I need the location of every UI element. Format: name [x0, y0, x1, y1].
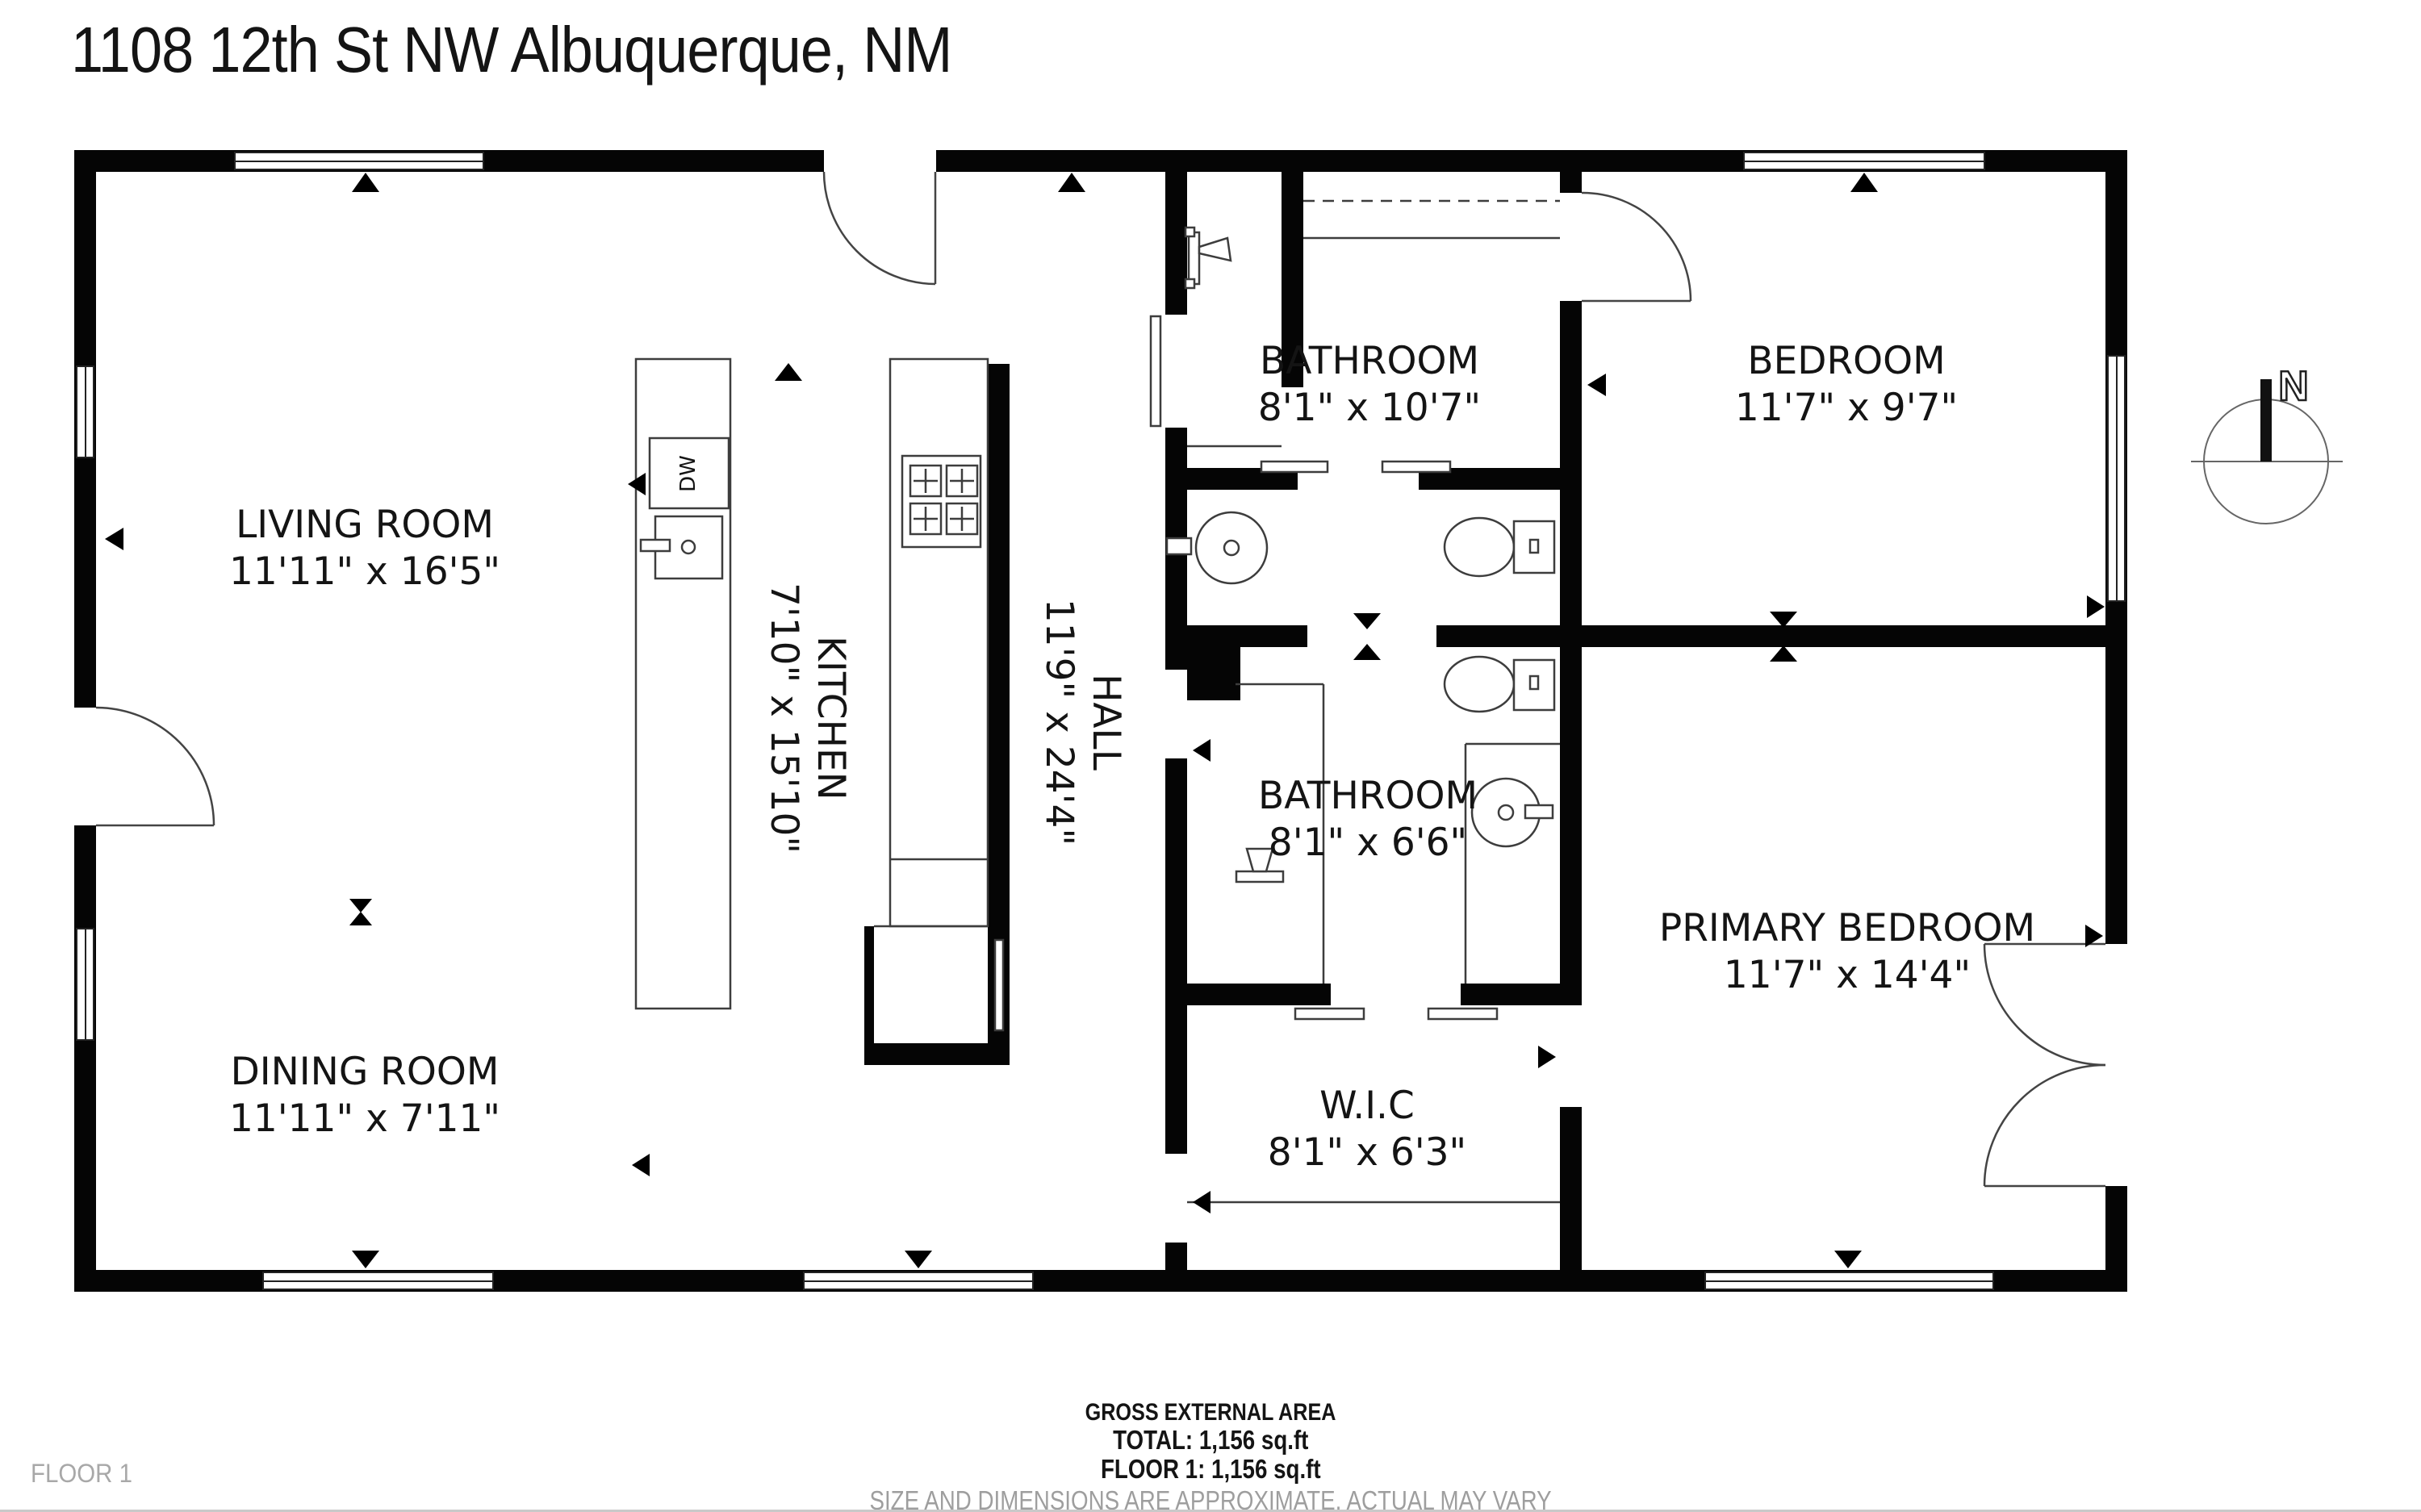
pocket-door-leaf [1151, 316, 1160, 426]
room-label-primary: PRIMARY BEDROOM 11'7" x 14'4" [1605, 905, 2089, 999]
room-name: BATHROOM [1166, 773, 1570, 820]
toilet-tank [1514, 521, 1554, 573]
shower-valve [1185, 279, 1194, 288]
marker-triangle [105, 528, 123, 550]
marker-triangle [632, 1154, 650, 1176]
kitchen-counter [890, 359, 988, 926]
marker-triangle [1353, 644, 1381, 660]
compass-rose: N [2191, 363, 2343, 524]
floor-plan-canvas: 1108 12th St NW Albuquerque, NM [0, 0, 2421, 1512]
side-door-arc [96, 708, 214, 825]
sink-drain [1224, 541, 1239, 555]
marker-triangle [1770, 612, 1797, 628]
total-area-text: TOTAL: 1,156 sq.ft [1113, 1426, 1308, 1455]
marker-triangle [1538, 1046, 1556, 1068]
room-dims: 8'1" x 6'3" [1165, 1130, 1569, 1176]
room-label-hall: HALL 11'9" x 24'4" [1035, 480, 1129, 964]
kitchen-sink-drain [682, 541, 695, 553]
room-dims: 8'1" x 10'7" [1168, 385, 1571, 432]
marker-triangle [2087, 595, 2105, 618]
stove-burners [910, 466, 977, 534]
pantry-door-leaf [995, 940, 1003, 1030]
marker-triangle [775, 363, 802, 381]
room-dims: 11'7" x 14'4" [1605, 952, 2089, 999]
tub-faucet-bracket [1236, 871, 1283, 882]
bedroom-door-arc [1582, 193, 1691, 301]
sink-faucet [1167, 538, 1191, 554]
dishwasher-label: DW [676, 455, 700, 492]
sliding-door-panel [1295, 1009, 1364, 1019]
floor1-area-text: FLOOR 1: 1,156 sq.ft [1101, 1455, 1321, 1484]
room-name: PRIMARY BEDROOM [1605, 905, 2089, 952]
room-name: KITCHEN [807, 476, 854, 960]
marker-triangle [352, 1251, 379, 1268]
room-name: LIVING ROOM [163, 502, 567, 549]
marker-triangle [1587, 374, 1606, 396]
compass-north-label: N [2278, 363, 2309, 410]
room-dims: 7'10" x 15'10" [760, 476, 807, 960]
room-label-living: LIVING ROOM 11'11" x 16'5" [163, 502, 567, 595]
room-label-kitchen: KITCHEN 7'10" x 15'10" [760, 476, 854, 960]
shower-valve [1185, 228, 1194, 236]
room-name: BEDROOM [1645, 338, 2048, 385]
marker-triangle [1850, 173, 1878, 192]
disclaimer: SIZE AND DIMENSIONS ARE APPROXIMATE, ACT… [0, 1485, 2421, 1512]
room-name: HALL [1082, 480, 1129, 964]
kitchen-sink-faucet [641, 540, 670, 551]
marker-triangle [349, 912, 372, 925]
compass-north-needle [2260, 379, 2272, 462]
marker-triangle [1193, 1191, 1210, 1213]
plan-symbols-layer: N [0, 0, 2421, 1512]
toilet-tank [1514, 660, 1554, 710]
shower-bracket [1189, 232, 1199, 284]
marker-triangle [1834, 1251, 1862, 1268]
toilet-bowl-icon [1445, 518, 1514, 576]
footer: GROSS EXTERNAL AREA TOTAL: 1,156 sq.ft F… [0, 1399, 2421, 1512]
room-name: DINING ROOM [163, 1049, 567, 1096]
floor1-area: FLOOR 1: 1,156 sq.ft [0, 1455, 2421, 1484]
gross-area-title: GROSS EXTERNAL AREA [0, 1399, 2421, 1426]
sliding-door-panel [1428, 1009, 1497, 1019]
marker-triangle [1770, 645, 1797, 662]
toilet-bowl-icon [1445, 657, 1514, 712]
room-label-bedroom: BEDROOM 11'7" x 9'7" [1645, 338, 2048, 432]
sliding-door-panel [1382, 462, 1450, 472]
room-dims: 11'7" x 9'7" [1645, 385, 2048, 432]
room-dims: 11'11" x 16'5" [163, 549, 567, 595]
floor-tag: FLOOR 1 [31, 1459, 132, 1489]
room-name: BATHROOM [1168, 338, 1571, 385]
entry-door-arc [824, 172, 935, 284]
room-label-bathroom2: BATHROOM 8'1" x 6'6" [1166, 773, 1570, 867]
room-dims: 11'11" x 7'11" [163, 1096, 567, 1142]
sink-icon [1196, 512, 1267, 583]
room-dims: 11'9" x 24'4" [1035, 480, 1082, 964]
marker-triangle [349, 899, 372, 913]
marker-triangle [905, 1251, 932, 1268]
room-label-dining: DINING ROOM 11'11" x 7'11" [163, 1049, 567, 1142]
marker-triangle [1058, 173, 1085, 192]
room-label-bathroom1: BATHROOM 8'1" x 10'7" [1168, 338, 1571, 432]
room-dims: 8'1" x 6'6" [1166, 820, 1570, 867]
total-area: TOTAL: 1,156 sq.ft [0, 1426, 2421, 1455]
marker-triangle [352, 173, 379, 192]
marker-triangle [1353, 613, 1381, 629]
sliding-door-panel [1261, 462, 1328, 472]
gross-area-title-text: GROSS EXTERNAL AREA [1085, 1399, 1336, 1426]
disclaimer-text: SIZE AND DIMENSIONS ARE APPROXIMATE, ACT… [869, 1485, 1551, 1512]
room-name: W.I.C [1165, 1083, 1569, 1130]
french-door-arc [1984, 1065, 2105, 1186]
room-label-wic: W.I.C 8'1" x 6'3" [1165, 1083, 1569, 1176]
marker-triangle [1193, 739, 1210, 762]
shower-head-icon [1199, 238, 1231, 261]
